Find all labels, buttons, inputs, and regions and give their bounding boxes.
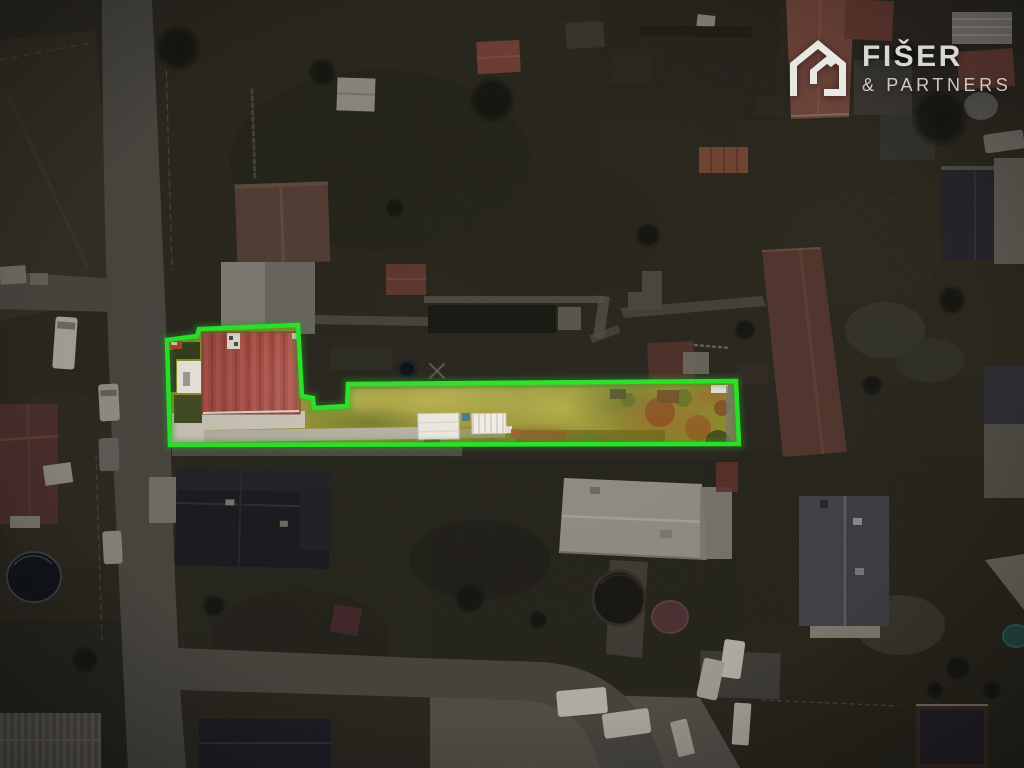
aerial-scene	[0, 0, 1024, 768]
brand-text: FIŠER & PARTNERS	[862, 42, 1011, 94]
house-logo-icon	[788, 36, 848, 98]
brand-suffix: & PARTNERS	[862, 76, 1011, 94]
aerial-photo: FIŠER & PARTNERS	[0, 0, 1024, 768]
vignette	[0, 0, 1024, 768]
brand-logo: FIŠER & PARTNERS	[788, 36, 1011, 98]
brand-name: FIŠER	[862, 42, 1011, 72]
